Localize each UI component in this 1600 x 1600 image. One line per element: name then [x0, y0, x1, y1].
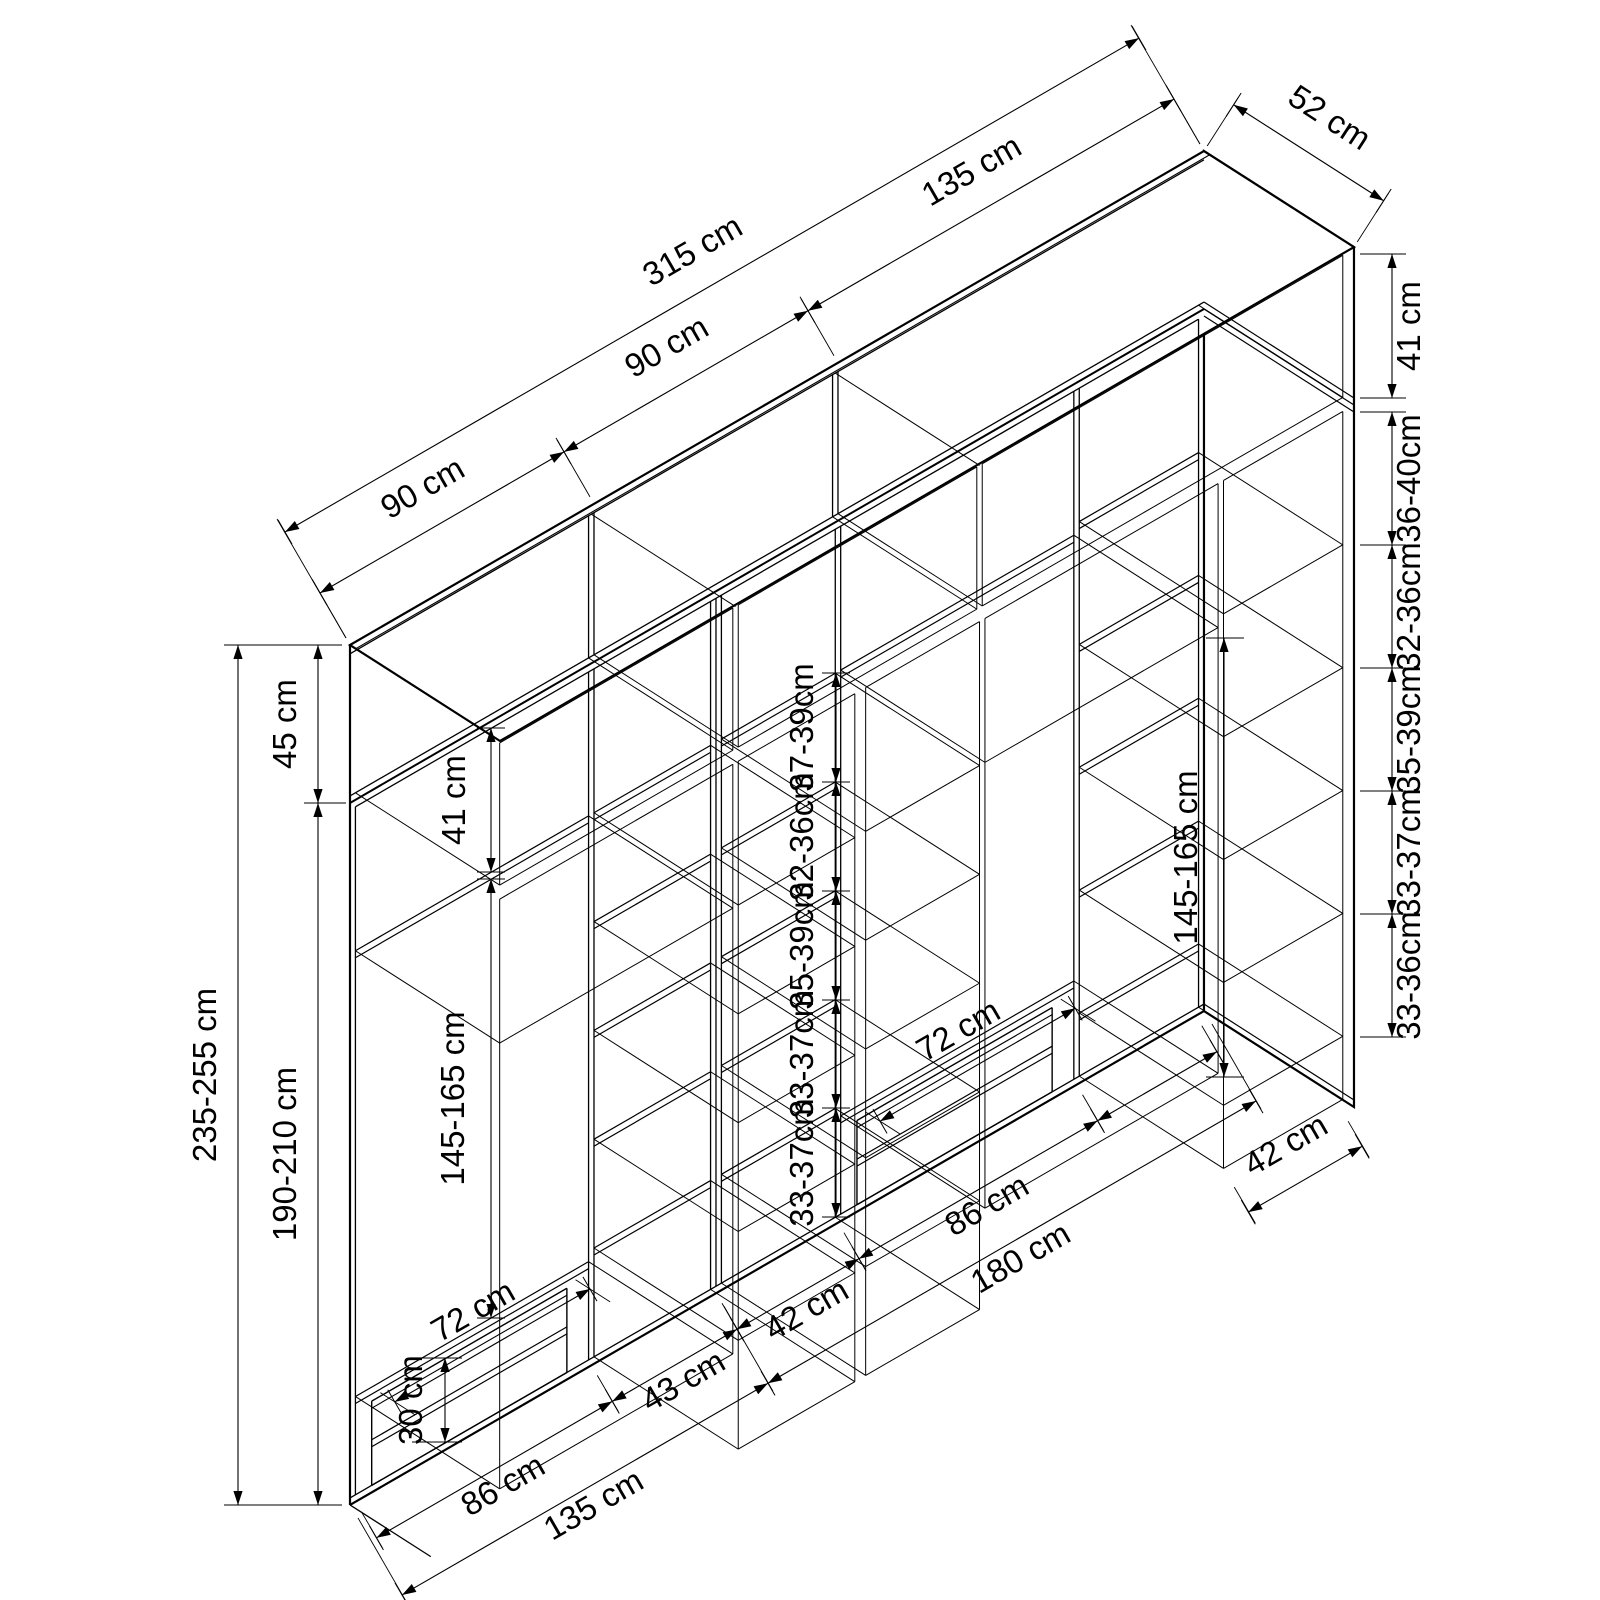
- dim-middle-gap-4: 33-37cm: [783, 1098, 820, 1226]
- dim-hang-right-0: 145-165 cm: [1167, 770, 1204, 944]
- dim-bottom-segment-0: 86 cm: [454, 1446, 550, 1523]
- dim-cubby-0: 41 cm: [435, 755, 472, 845]
- dim-right-gap-2: 35-39cm: [1390, 665, 1427, 793]
- dim-hang-left-0: 145-165 cm: [434, 1011, 471, 1185]
- dim-bottom-segment-2: 42 cm: [758, 1271, 854, 1348]
- dim-right-gap-1: 32-36cm: [1390, 542, 1427, 670]
- dim-left-section-0: 45 cm: [266, 679, 303, 769]
- dim-right-gap-4: 33-36cm: [1390, 911, 1427, 1039]
- dim-bottom-cabinet-0: 135 cm: [537, 1461, 649, 1547]
- dim-right-gap-3: 33-37cm: [1390, 788, 1427, 916]
- dim-top-total-0: 315 cm: [636, 207, 748, 293]
- dim-right-toprow-0: 41 cm: [1390, 281, 1427, 371]
- dim-bottom-segment-1: 43 cm: [635, 1342, 731, 1419]
- dim-left-total-0: 235-255 cm: [186, 988, 223, 1162]
- diagram-canvas: 90 cm90 cm135 cm315 cm52 cm41 cm36-40cm3…: [0, 0, 1600, 1600]
- dim-bottom-segment-3: 86 cm: [938, 1166, 1034, 1243]
- dim-top-segment-2: 135 cm: [915, 127, 1027, 213]
- dim-left-section-1: 190-210 cm: [266, 1067, 303, 1241]
- dim-right-gap-0: 36-40cm: [1390, 414, 1427, 542]
- wardrobe-dimension-diagram: 90 cm90 cm135 cm315 cm52 cm41 cm36-40cm3…: [0, 0, 1600, 1600]
